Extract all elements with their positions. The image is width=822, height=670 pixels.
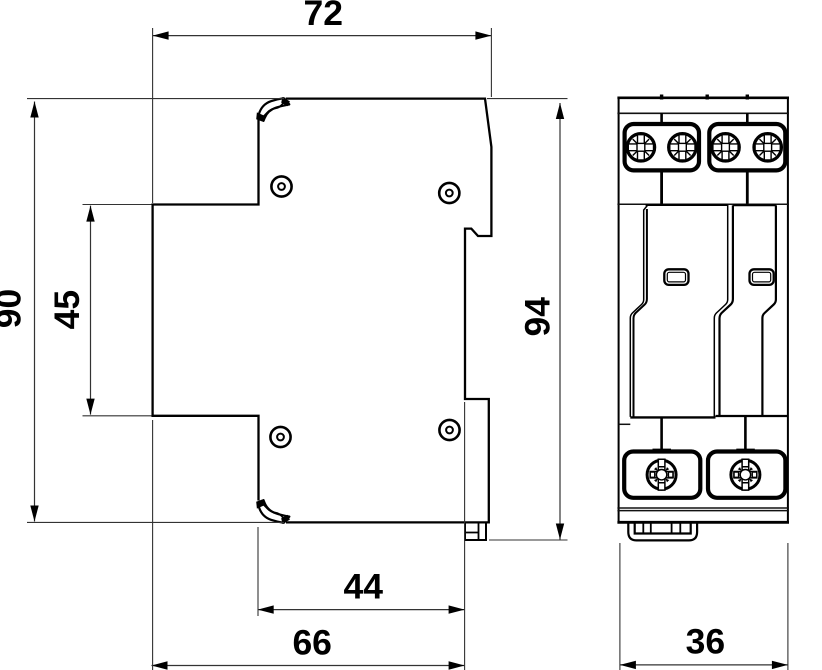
svg-text:36: 36 [686,622,726,662]
svg-text:44: 44 [344,566,384,606]
svg-text:72: 72 [304,0,344,33]
svg-text:94: 94 [518,297,558,337]
svg-text:90: 90 [0,289,29,329]
svg-text:66: 66 [292,622,332,662]
svg-text:45: 45 [47,290,87,330]
